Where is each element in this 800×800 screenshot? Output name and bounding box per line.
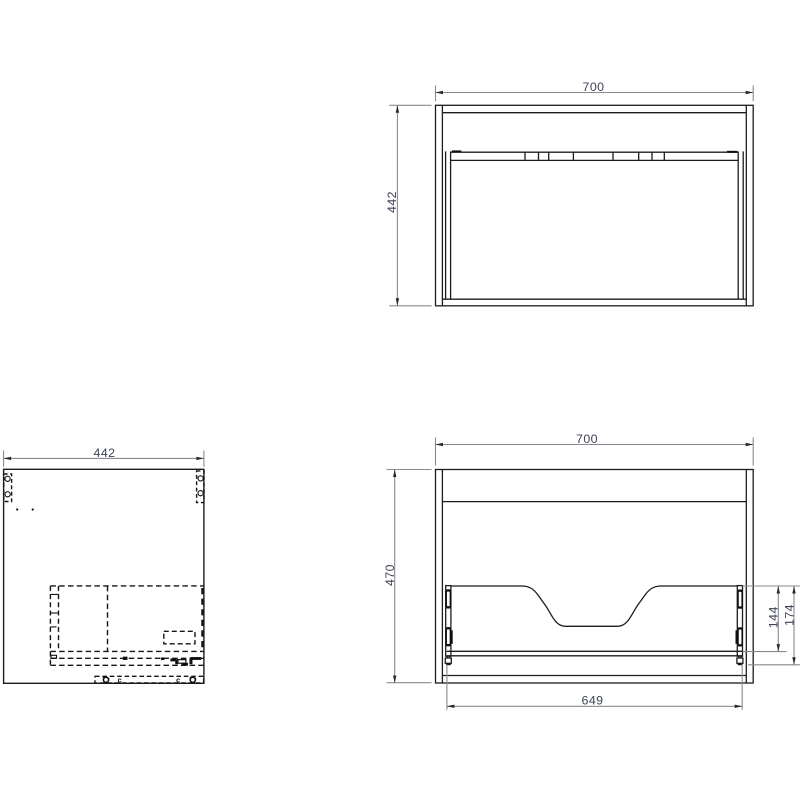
- svg-text:700: 700: [582, 80, 604, 94]
- svg-text:470: 470: [383, 564, 397, 586]
- svg-text:700: 700: [576, 432, 598, 446]
- svg-text:144: 144: [767, 606, 781, 628]
- svg-text:442: 442: [385, 191, 399, 213]
- svg-text:c: c: [118, 675, 122, 684]
- svg-text:174: 174: [782, 604, 796, 626]
- svg-text:442: 442: [93, 446, 115, 460]
- svg-text:c: c: [176, 675, 180, 684]
- svg-text:649: 649: [581, 694, 603, 708]
